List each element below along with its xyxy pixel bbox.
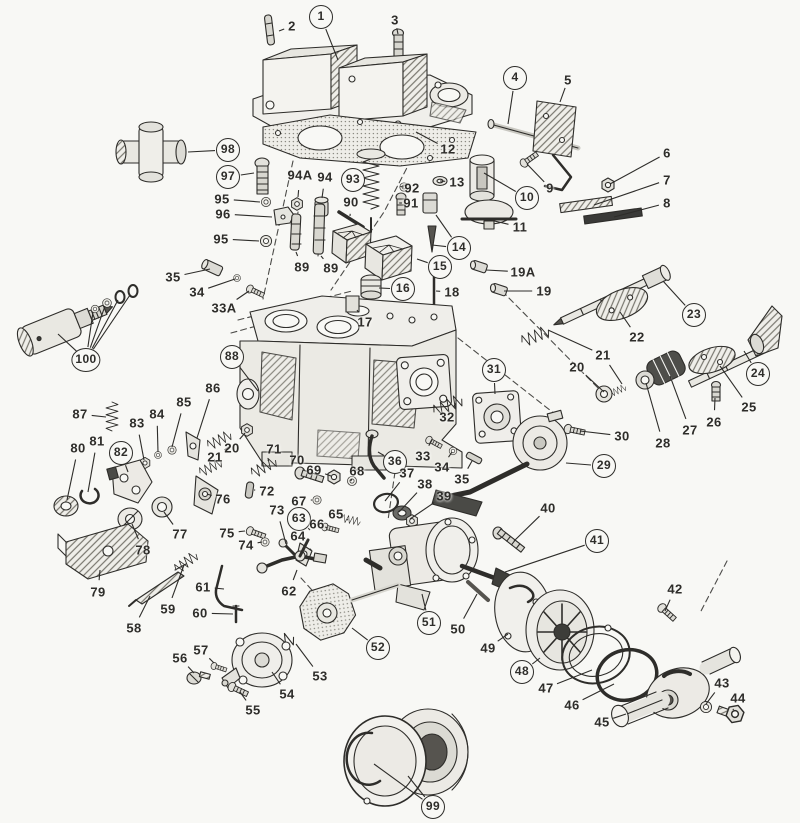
bolt-44 [717, 703, 745, 725]
emulsion-tube-89a [290, 214, 301, 250]
screw-70 [295, 467, 324, 483]
nut-20a [242, 424, 253, 437]
c-washer-81 [81, 489, 99, 503]
washer-68 [347, 476, 356, 485]
spring-59 [173, 550, 200, 574]
spring-21a [206, 429, 233, 450]
pin-35b [466, 452, 483, 465]
oring-95b [260, 235, 271, 246]
jet-19 [491, 283, 508, 296]
screw-9 [519, 150, 540, 168]
stud-2 [264, 15, 275, 46]
jet-19a [471, 260, 488, 273]
spring-87 [106, 402, 118, 431]
needle-58 [129, 564, 186, 606]
screw-97 [255, 158, 269, 194]
lever-76 [194, 476, 218, 514]
float-15 [365, 236, 412, 280]
screw-33a [245, 284, 265, 299]
washer-92 [400, 183, 408, 191]
spring-21a2 [198, 458, 224, 478]
throttle-shaft-23 [550, 264, 672, 332]
exploded-diagram-page: 1234567891011121314151617181919A20212021… [0, 0, 800, 823]
fitting-98 [116, 122, 186, 182]
nut-94a [292, 198, 303, 211]
washer-34b [449, 447, 457, 455]
pump-housing-54 [222, 633, 292, 688]
needle-valve-14 [423, 193, 437, 252]
exploded-diagram-artwork [0, 0, 800, 823]
oring-95 [261, 197, 270, 206]
rod-50 [468, 582, 488, 600]
washer-84 [155, 452, 162, 459]
screw-91 [396, 193, 406, 215]
top-cover-1 [253, 45, 472, 131]
washer-85 [168, 446, 176, 454]
pin-72 [245, 482, 254, 499]
spring-65 [341, 514, 361, 525]
fitting-16 [361, 275, 381, 299]
screw-57 [210, 662, 227, 674]
screw-55 [227, 681, 250, 698]
emulsion-tube-89b [313, 204, 325, 254]
lever-86 [186, 432, 200, 460]
rod-61 [216, 566, 242, 610]
strip-7 [560, 196, 613, 212]
diaphragm-11 [462, 200, 516, 229]
washer-43 [700, 701, 711, 712]
screw-56 [187, 672, 210, 684]
nut-6 [602, 178, 614, 192]
washer-34a [234, 275, 241, 282]
washer-74 [261, 538, 269, 546]
screw-3 [393, 29, 404, 59]
throttle-shaft-24 [636, 306, 782, 389]
screw-42 [656, 602, 678, 623]
nut-69 [328, 470, 340, 484]
screw-30 [563, 424, 585, 437]
screw-26 [712, 382, 721, 402]
plate-5 [533, 101, 576, 190]
strip-8 [584, 208, 643, 224]
solenoid-100 [14, 285, 137, 358]
choke-body-51 [366, 518, 512, 610]
screw-40 [493, 527, 525, 552]
cap-80 [54, 496, 78, 516]
screw-66 [321, 522, 340, 534]
air-horn-99 [344, 709, 468, 806]
washer-20b [596, 386, 612, 402]
pump-cover-52 [297, 581, 398, 642]
choke-piston-10 [470, 155, 494, 201]
washer-13 [433, 177, 447, 186]
plug-35a [200, 259, 223, 277]
bracket-79 [58, 524, 148, 579]
washer-67 [313, 496, 321, 504]
bushing-77 [152, 497, 172, 517]
